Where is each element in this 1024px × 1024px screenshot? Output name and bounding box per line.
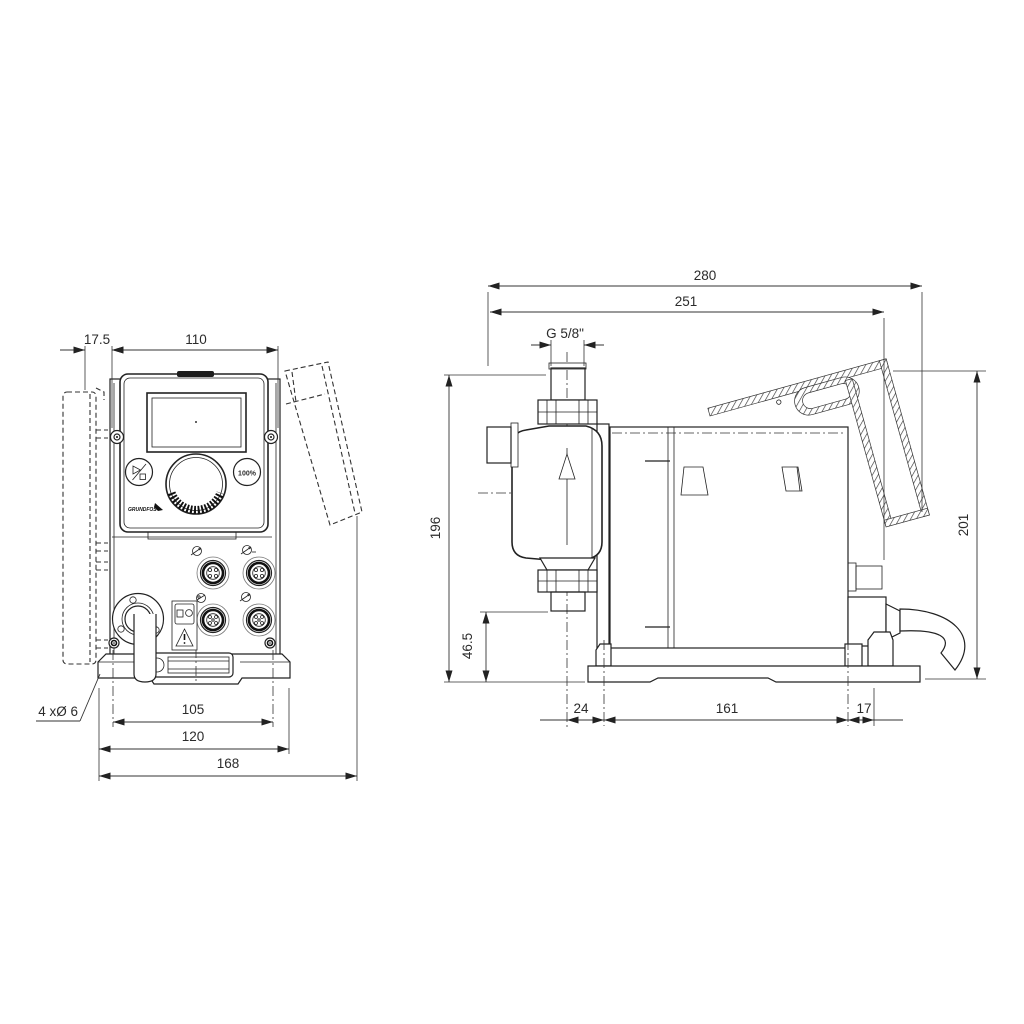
base-foot-right [845, 644, 862, 666]
technical-drawing-page: 100% GRUNDFOS [0, 0, 1024, 1024]
dim-height-valve-top: 196 [428, 517, 443, 540]
dim-height-valve-bottom: 46.5 [460, 633, 475, 659]
housing-screw-right [265, 638, 275, 648]
control-panel: 100% GRUNDFOS [111, 371, 278, 532]
panel-screw-left [111, 431, 124, 444]
suction-union-nut [538, 570, 597, 592]
discharge-union-nut [538, 400, 597, 424]
dimensional-drawing-svg: 100% GRUNDFOS [0, 0, 1024, 1024]
panel-top-tab [177, 371, 214, 377]
dim-connection-thread: G 5/8" [546, 326, 584, 341]
dosing-head-body [512, 426, 602, 560]
dim-flange-width: 120 [182, 729, 205, 744]
brand-logo-text: GRUNDFOS [128, 507, 157, 513]
dim-foot-to-edge: 17 [856, 701, 871, 716]
dim-hole-spacing: 105 [182, 702, 205, 717]
power-cable-front [134, 614, 156, 682]
housing-screw-left [109, 638, 119, 648]
warning-label [172, 601, 197, 650]
base-bracket-right [868, 632, 893, 666]
dim-foot-offset: 24 [573, 701, 589, 716]
dim-mounting-depth: 251 [675, 294, 698, 309]
panel-screw-right [265, 431, 278, 444]
mounting-holes-callout: 4 xØ 6 [38, 704, 78, 719]
base-foot-left [596, 644, 611, 666]
dim-total-width: 168 [217, 756, 240, 771]
dim-plate-offset: 17.5 [84, 332, 110, 347]
dim-total-depth: 280 [694, 268, 717, 283]
dim-panel-width: 110 [185, 332, 207, 347]
dim-total-height: 201 [956, 514, 971, 537]
capacity-button-label: 100% [238, 471, 257, 478]
dim-foot-spacing: 161 [716, 701, 739, 716]
